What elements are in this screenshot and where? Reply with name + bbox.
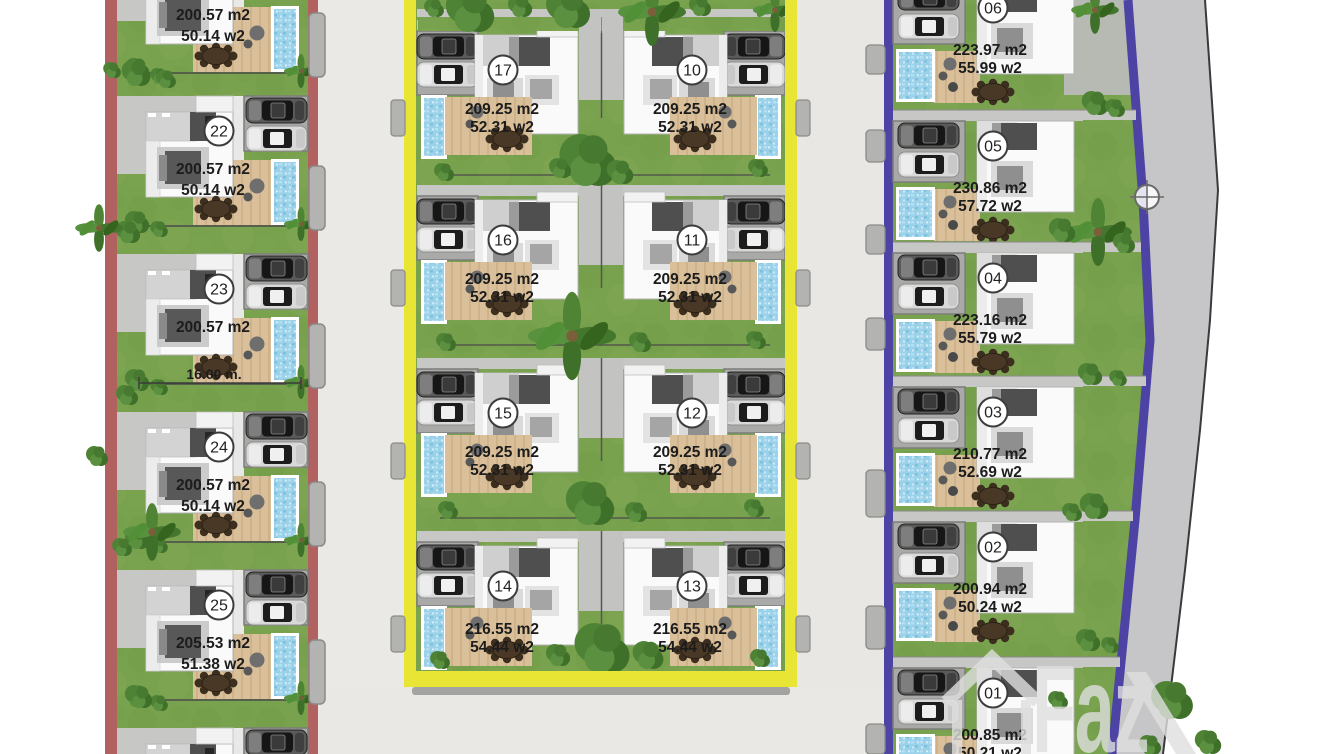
svg-text:22: 22 [210,124,228,141]
svg-text:200.85 m2: 200.85 m2 [953,727,1027,744]
svg-text:03: 03 [984,405,1002,422]
svg-text:24: 24 [210,440,228,457]
svg-text:57.72 w2: 57.72 w2 [958,198,1022,215]
svg-text:05: 05 [984,139,1002,156]
svg-text:223.16 m2: 223.16 m2 [953,312,1027,329]
svg-text:209.25 m2: 209.25 m2 [465,444,539,461]
svg-text:200.57 m2: 200.57 m2 [176,7,250,24]
svg-text:54.44 w2: 54.44 w2 [658,639,722,656]
svg-text:209.25 m2: 209.25 m2 [653,101,727,118]
svg-text:223.97 m2: 223.97 m2 [953,42,1027,59]
svg-text:06: 06 [984,1,1002,18]
svg-text:209.25 m2: 209.25 m2 [465,101,539,118]
svg-text:10: 10 [683,63,701,80]
svg-text:216.55 m2: 216.55 m2 [653,621,727,638]
svg-text:15: 15 [494,406,512,423]
svg-text:216.55 m2: 216.55 m2 [465,621,539,638]
svg-text:52.69 w2: 52.69 w2 [958,464,1022,481]
svg-text:51.38 w2: 51.38 w2 [181,656,245,673]
svg-text:55.99 w2: 55.99 w2 [958,60,1022,77]
svg-text:52.31 w2: 52.31 w2 [470,289,534,306]
svg-text:50.14 w2: 50.14 w2 [181,498,245,515]
svg-text:200.57 m2: 200.57 m2 [176,161,250,178]
svg-text:209.25 m2: 209.25 m2 [653,271,727,288]
svg-text:17: 17 [494,63,512,80]
svg-text:50.14 w2: 50.14 w2 [181,182,245,199]
svg-text:200.94 m2: 200.94 m2 [953,581,1027,598]
svg-text:52.31 w2: 52.31 w2 [470,462,534,479]
svg-text:14: 14 [494,579,512,596]
svg-text:54.44 w2: 54.44 w2 [470,639,534,656]
svg-text:13: 13 [683,579,701,596]
svg-text:50.21 w2: 50.21 w2 [958,745,1022,754]
svg-text:55.79 w2: 55.79 w2 [958,330,1022,347]
svg-text:230.86 m2: 230.86 m2 [953,180,1027,197]
svg-text:12: 12 [683,406,701,423]
svg-text:04: 04 [984,271,1002,288]
svg-text:16: 16 [494,233,512,250]
svg-text:50.24 w2: 50.24 w2 [958,599,1022,616]
svg-text:209.25 m2: 209.25 m2 [465,271,539,288]
svg-text:205.53 m2: 205.53 m2 [176,635,250,652]
svg-text:Faz: Faz [1032,641,1148,754]
svg-text:23: 23 [210,282,228,299]
svg-text:01: 01 [984,686,1002,703]
svg-text:52.31 w2: 52.31 w2 [658,119,722,136]
svg-text:16.00 m.: 16.00 m. [186,366,241,382]
svg-text:200.57 m2: 200.57 m2 [176,319,250,336]
svg-text:209.25 m2: 209.25 m2 [653,444,727,461]
svg-text:200.57 m2: 200.57 m2 [176,477,250,494]
svg-text:25: 25 [210,598,228,615]
svg-text:11: 11 [684,233,701,250]
svg-text:02: 02 [984,540,1002,557]
svg-text:52.31 w2: 52.31 w2 [470,119,534,136]
svg-text:210.77 m2: 210.77 m2 [953,446,1027,463]
svg-text:52.31 w2: 52.31 w2 [658,462,722,479]
svg-text:50.14 w2: 50.14 w2 [181,28,245,45]
svg-text:52.31 w2: 52.31 w2 [658,289,722,306]
